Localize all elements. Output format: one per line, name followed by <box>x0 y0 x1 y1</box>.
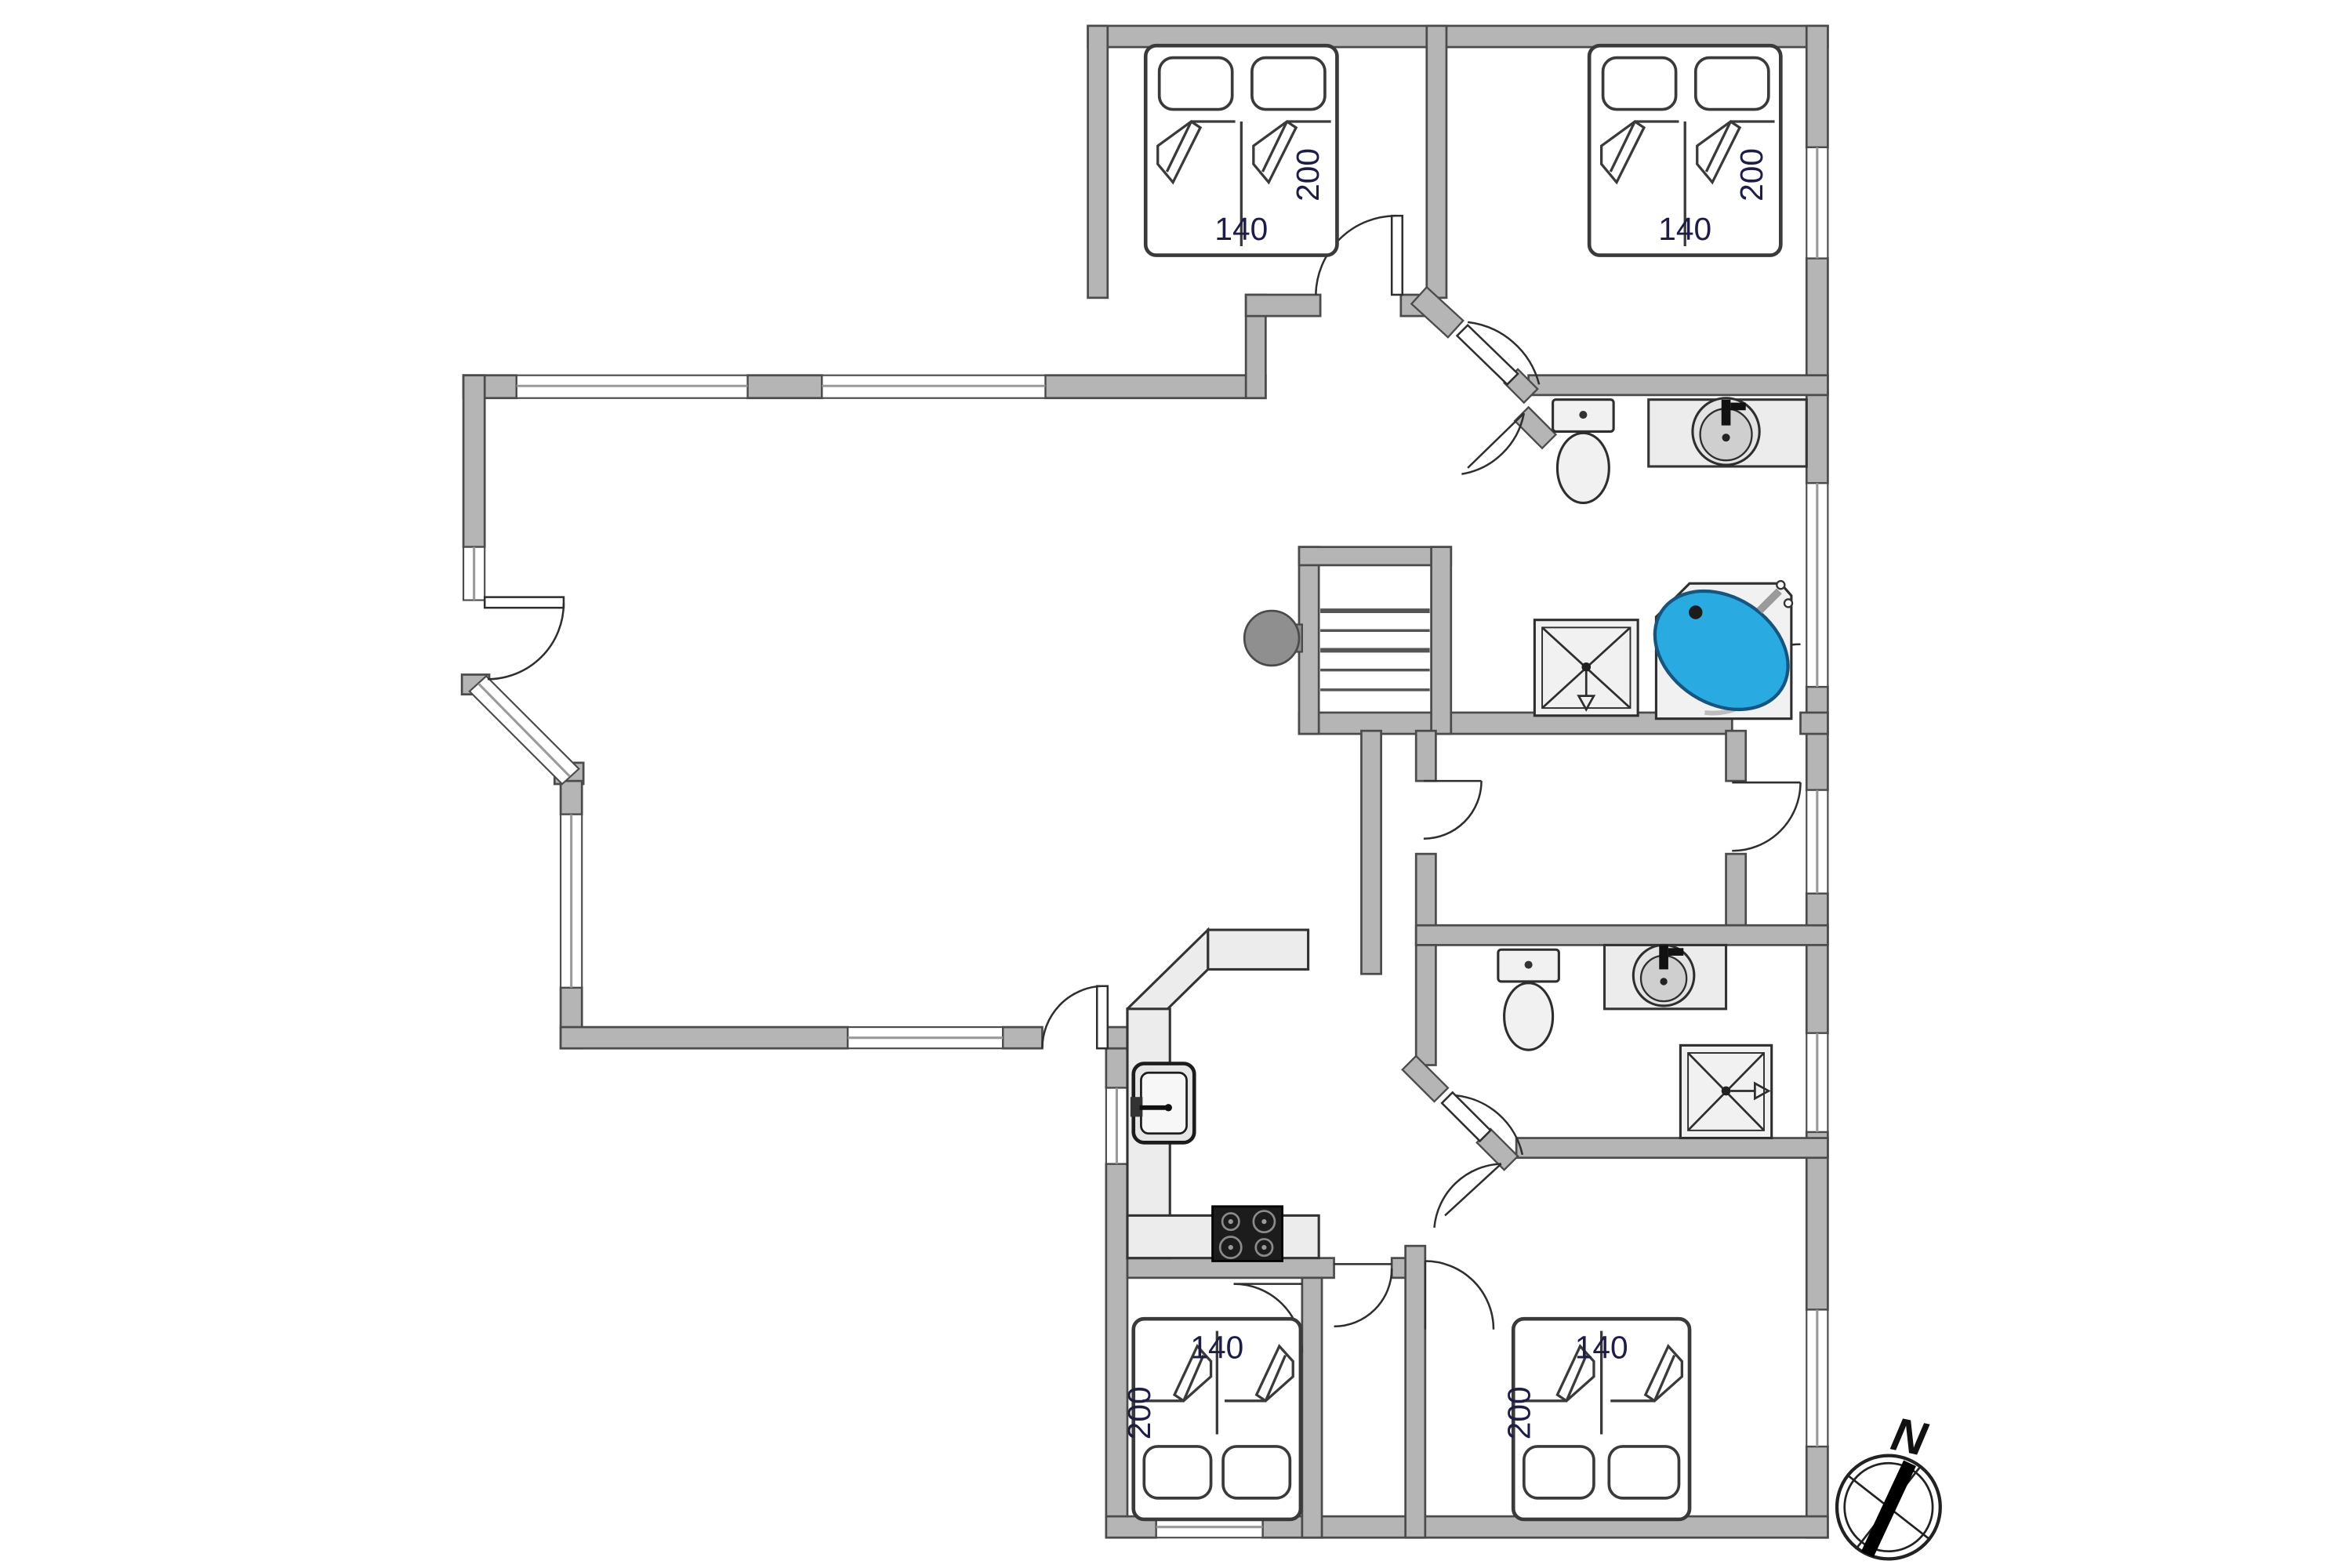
lower-bathroom <box>1498 945 1772 1138</box>
bed-width-label: 140 <box>1575 1330 1628 1366</box>
floor-plan-page: 140 200 140 200 140 200 <box>0 0 2352 1568</box>
bed-length-label: 200 <box>1733 148 1769 201</box>
door-bedroom-top-right <box>1457 322 1540 384</box>
window-right-3 <box>1806 790 1828 894</box>
door-office-right <box>1732 782 1800 851</box>
cooktop-icon <box>1213 1207 1283 1261</box>
window-right-1 <box>1806 147 1828 258</box>
window-right-4 <box>1806 1033 1828 1132</box>
toilet-icon-upper <box>1553 400 1614 503</box>
compass-rose: N <box>1816 1407 1961 1568</box>
door-upper-bathroom <box>1461 413 1523 474</box>
bed-bottom-right: 140 200 <box>1501 1319 1690 1519</box>
bed-length-label: 200 <box>1501 1386 1537 1439</box>
toilet-icon-lower <box>1498 949 1559 1050</box>
door-bedroom-bottom-right <box>1425 1261 1494 1330</box>
window-right-5 <box>1806 1310 1828 1446</box>
window-lowerleft <box>1106 1088 1127 1164</box>
door-bedroom-bottom-right-vestibule <box>1434 1163 1501 1227</box>
window-living-bottom <box>848 1027 1003 1048</box>
window-top-1 <box>517 376 748 398</box>
door-office-left <box>1424 781 1482 839</box>
door-terrace-left <box>485 597 564 680</box>
sink-icon-upper <box>1649 398 1807 466</box>
bed-length-label: 200 <box>1121 1386 1157 1439</box>
north-label: N <box>1887 1407 1933 1466</box>
kitchen <box>1127 930 1319 1261</box>
shower-icon-lower <box>1680 1045 1771 1138</box>
bed-width-label: 140 <box>1190 1330 1243 1366</box>
staircase <box>1320 611 1430 690</box>
wood-stove-icon <box>1244 611 1302 666</box>
bed-width-label: 140 <box>1658 211 1711 247</box>
window-below-bay <box>561 815 582 988</box>
sink-icon-lower <box>1605 945 1726 1008</box>
kitchen-sink-icon <box>1131 1064 1194 1143</box>
floor-plan-drawing: 140 200 140 200 140 200 <box>0 0 2352 1568</box>
bed-top-right: 140 200 <box>1589 45 1780 255</box>
compass-needle <box>1867 1463 1910 1554</box>
window-right-2 <box>1806 483 1828 687</box>
window-bay-diagonal <box>470 676 579 784</box>
shower-icon-upper <box>1534 620 1638 716</box>
bed-width-label: 140 <box>1214 211 1268 247</box>
bed-top-left: 140 200 <box>1145 45 1337 255</box>
window-top-2 <box>822 376 1045 398</box>
upper-bathroom <box>1534 398 1810 734</box>
window-left <box>463 547 485 601</box>
door-living-bottom <box>1042 986 1107 1048</box>
bed-length-label: 200 <box>1290 148 1326 201</box>
bathtub-icon <box>1632 567 1810 734</box>
door-kitchen-hall <box>1334 1264 1392 1326</box>
bed-bottom-left: 140 200 <box>1121 1319 1301 1519</box>
